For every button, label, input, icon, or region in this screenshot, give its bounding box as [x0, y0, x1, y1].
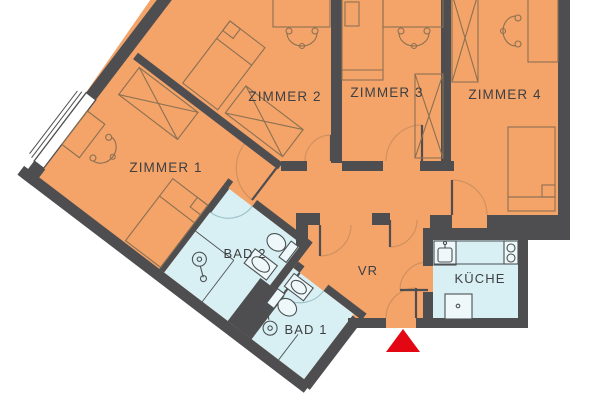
floor-plan-drawing: ZIMMER 1 ZIMMER 2 ZIMMER 3 ZIMMER 4 BAD … [0, 0, 600, 400]
room-label-kueche: KÜCHE [454, 271, 505, 286]
entrance-marker-icon [386, 329, 420, 352]
room-label-bad1: BAD 1 [284, 322, 327, 337]
room-label-zimmer1: ZIMMER 1 [129, 160, 202, 175]
room-label-zimmer3: ZIMMER 3 [350, 85, 423, 100]
fridge-icon [445, 294, 472, 319]
floor-plan-page: ZIMMER 1 ZIMMER 2 ZIMMER 3 ZIMMER 4 BAD … [0, 0, 600, 400]
room-label-zimmer2: ZIMMER 2 [248, 89, 321, 104]
kitchen-sink-icon [434, 241, 456, 265]
room-label-vr: VR [358, 263, 378, 278]
room-label-zimmer4: ZIMMER 4 [468, 87, 541, 102]
stove-icon [504, 241, 518, 264]
room-label-bad2: BAD 2 [223, 246, 266, 261]
